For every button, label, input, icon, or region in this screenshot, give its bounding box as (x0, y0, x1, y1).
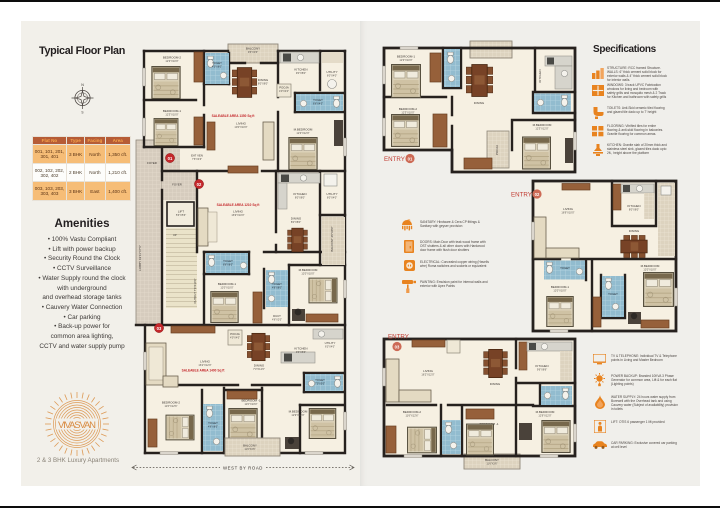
svg-text:ENTRY: ENTRY (511, 192, 532, 199)
svg-text:KITCHEN: KITCHEN (293, 192, 306, 196)
svg-text:KITCHEN: KITCHEN (535, 364, 548, 368)
svg-text:TOILET: TOILET (315, 378, 325, 382)
svg-text:BEDROOM-2: BEDROOM-2 (403, 410, 422, 414)
svg-text:KITCHEN: KITCHEN (538, 69, 542, 82)
svg-text:M.BEDROOM: M.BEDROOM (536, 410, 555, 414)
svg-text:BEDROOM-2: BEDROOM-2 (163, 56, 182, 60)
svg-text:M.BEDROOM: M.BEDROOM (533, 123, 552, 127)
svg-text:11'6"X3'6": 11'6"X3'6" (244, 448, 255, 451)
svg-text:M.BEDROOM: M.BEDROOM (299, 268, 318, 272)
svg-text:16'9"X10'0": 16'9"X10'0" (561, 211, 574, 215)
svg-text:12'3"X10'0": 12'3"X10'0" (401, 111, 414, 115)
svg-text:FOYER: FOYER (147, 161, 157, 165)
svg-text:16'2"X12'0": 16'2"X12'0" (421, 373, 434, 377)
svg-text:BEDROOM-1: BEDROOM-1 (551, 285, 570, 289)
svg-text:12'3"X10'0": 12'3"X10'0" (399, 58, 412, 62)
svg-text:12'0"X10'0": 12'0"X10'0" (643, 268, 656, 272)
svg-text:BEDROOM-1: BEDROOM-1 (397, 55, 416, 59)
svg-text:DUCT: DUCT (273, 314, 281, 318)
svg-text:BALCONY: BALCONY (485, 458, 499, 462)
svg-text:KITCHEN: KITCHEN (294, 68, 307, 72)
svg-text:TOILET: TOILET (608, 292, 618, 296)
svg-text:9'0"X8'0": 9'0"X8'0" (296, 71, 306, 75)
svg-text:02: 02 (535, 192, 540, 197)
svg-text:4'6"X2'0": 4'6"X2'0" (272, 318, 282, 321)
svg-text:DINING: DINING (254, 364, 265, 368)
svg-text:12'3"X12'0": 12'3"X12'0" (535, 127, 548, 131)
svg-text:4'0"X8'0": 4'0"X8'0" (212, 65, 222, 68)
svg-text:DINING: DINING (490, 382, 501, 386)
svg-text:6'0"X4'0": 6'0"X4'0" (327, 196, 337, 200)
svg-text:BEDROOM-1: BEDROOM-1 (163, 109, 182, 113)
svg-text:01: 01 (168, 156, 173, 161)
svg-text:KITCHEN: KITCHEN (294, 347, 307, 351)
svg-text:5'6"X5'6": 5'6"X5'6" (176, 213, 186, 217)
svg-text:M.BEDROOM: M.BEDROOM (289, 410, 308, 414)
svg-text:M.BEDROOM: M.BEDROOM (294, 128, 313, 132)
svg-text:BALCONY: BALCONY (243, 444, 257, 448)
svg-text:KITCHEN: KITCHEN (627, 204, 640, 208)
svg-text:03: 03 (395, 344, 400, 349)
svg-text:DINING: DINING (474, 101, 485, 105)
svg-text:LIVING: LIVING (236, 122, 247, 126)
svg-text:BEDROOM-2: BEDROOM-2 (162, 401, 181, 405)
svg-text:10'0"X10'0": 10'0"X10'0" (234, 125, 247, 129)
svg-text:7'3"X12'6": 7'3"X12'6" (253, 367, 265, 371)
svg-text:9'6"X3'6": 9'6"X3'6" (248, 50, 258, 54)
svg-text:UP: UP (173, 233, 177, 237)
svg-text:8'0"X8'0": 8'0"X8'0" (291, 220, 301, 224)
svg-text:12'3"X12'0": 12'3"X12'0" (296, 131, 309, 135)
svg-text:LIVING: LIVING (200, 360, 211, 364)
svg-text:FOYER: FOYER (172, 183, 182, 187)
svg-text:DINING: DINING (291, 217, 302, 221)
svg-text:11'6"X12'6": 11'6"X12'6" (164, 404, 177, 408)
svg-text:12'0"X10'0": 12'0"X10'0" (220, 286, 233, 290)
svg-text:11'0"X10'0": 11'0"X10'0" (244, 402, 257, 406)
svg-text:8'6"X8'0": 8'6"X8'0" (223, 263, 233, 266)
svg-text:UTILITY: UTILITY (325, 341, 336, 345)
svg-text:BALCONY 4'0"X8'0": BALCONY 4'0"X8'0" (330, 226, 334, 251)
svg-text:TOILET: TOILET (313, 98, 323, 102)
svg-text:S: S (81, 111, 83, 115)
svg-text:SALEABLE AREA 1400 Sq ft: SALEABLE AREA 1400 Sq ft (182, 369, 226, 373)
svg-text:TOILET: TOILET (208, 421, 218, 425)
svg-text:TOILET: TOILET (560, 266, 570, 270)
svg-text:UTILITY: UTILITY (326, 70, 337, 74)
svg-text:9'6"X8'6": 9'6"X8'6" (537, 368, 547, 372)
svg-text:BALCONY: BALCONY (246, 47, 260, 51)
svg-text:SALEABLE AREA 1210 Sq ft: SALEABLE AREA 1210 Sq ft (217, 203, 261, 207)
svg-text:POOJA: POOJA (495, 145, 499, 155)
svg-text:M.BEDROOM: M.BEDROOM (641, 264, 660, 268)
svg-text:ENTRY: ENTRY (388, 334, 409, 341)
svg-text:8'0"X8'0": 8'0"X8'0" (258, 81, 268, 85)
svg-text:LIVING: LIVING (233, 210, 244, 214)
svg-text:7'0"X5'0": 7'0"X5'0" (315, 382, 325, 385)
svg-text:DINING: DINING (258, 78, 269, 82)
svg-text:TOILET: TOILET (212, 61, 222, 65)
svg-text:16'9"X10'0": 16'9"X10'0" (231, 213, 244, 217)
svg-text:ENTRY: ENTRY (384, 156, 405, 163)
svg-text:SALEABLE AREA 1350 Sq ft: SALEABLE AREA 1350 Sq ft (212, 114, 256, 118)
svg-text:TOILET: TOILET (272, 282, 282, 286)
svg-text:N: N (81, 83, 84, 87)
svg-text:6'0"X4'0": 6'0"X4'0" (327, 73, 337, 77)
svg-text:6'6"X4'0": 6'6"X4'0" (313, 102, 323, 105)
svg-text:4'0"X4'0": 4'0"X4'0" (279, 90, 289, 93)
svg-text:03: 03 (157, 326, 162, 331)
svg-text:TOILET: TOILET (223, 259, 233, 263)
svg-text:12'0"X10'0": 12'0"X10'0" (301, 272, 314, 276)
svg-text:11'6"X12'6": 11'6"X12'6" (405, 414, 418, 418)
svg-text:8'0"X8'0": 8'0"X8'0" (295, 196, 305, 200)
svg-text:01: 01 (408, 156, 413, 161)
svg-text:02: 02 (197, 182, 202, 187)
svg-text:7'6"X4'6": 7'6"X4'6" (192, 158, 202, 161)
svg-text:LIVING: LIVING (563, 207, 574, 211)
svg-text:12'9"X12'0": 12'9"X12'0" (291, 413, 304, 417)
svg-text:DINING: DINING (629, 229, 640, 233)
svg-text:12'0"X10'0": 12'0"X10'0" (553, 289, 566, 293)
svg-text:9'6"X8'6": 9'6"X8'6" (296, 350, 306, 354)
svg-text:LIFT: LIFT (178, 210, 184, 214)
svg-text:12'3"X10'0": 12'3"X10'0" (165, 113, 178, 117)
svg-text:16'2"X12'0": 16'2"X12'0" (198, 363, 211, 367)
svg-text:12'3"X10'0": 12'3"X10'0" (165, 59, 178, 63)
svg-text:CUTOUT 7'6"X14'6": CUTOUT 7'6"X14'6" (193, 278, 197, 303)
svg-text:11'6"X3'6": 11'6"X3'6" (486, 463, 497, 466)
svg-text:BEDROOM-2: BEDROOM-2 (399, 107, 418, 111)
svg-text:UTILITY: UTILITY (326, 192, 337, 196)
svg-text:4'6"X8'0": 4'6"X8'0" (272, 286, 282, 289)
svg-text:4'0"X4'0": 4'0"X4'0" (230, 336, 240, 339)
svg-text:4'6"X8'0": 4'6"X8'0" (208, 425, 218, 428)
svg-text:8'0"X8'0": 8'0"X8'0" (629, 208, 639, 212)
svg-text:LOBBY 19'11"X7'6": LOBBY 19'11"X7'6" (138, 245, 142, 271)
svg-text:WEST BY ROAD: WEST BY ROAD (223, 465, 263, 470)
svg-text:BEDROOM-1: BEDROOM-1 (218, 282, 237, 286)
svg-text:6'3"X4'0": 6'3"X4'0" (325, 345, 335, 348)
svg-text:LIVING: LIVING (423, 369, 434, 373)
svg-text:12'9"X12'0": 12'9"X12'0" (538, 414, 551, 418)
svg-text:POOJA: POOJA (230, 332, 240, 336)
